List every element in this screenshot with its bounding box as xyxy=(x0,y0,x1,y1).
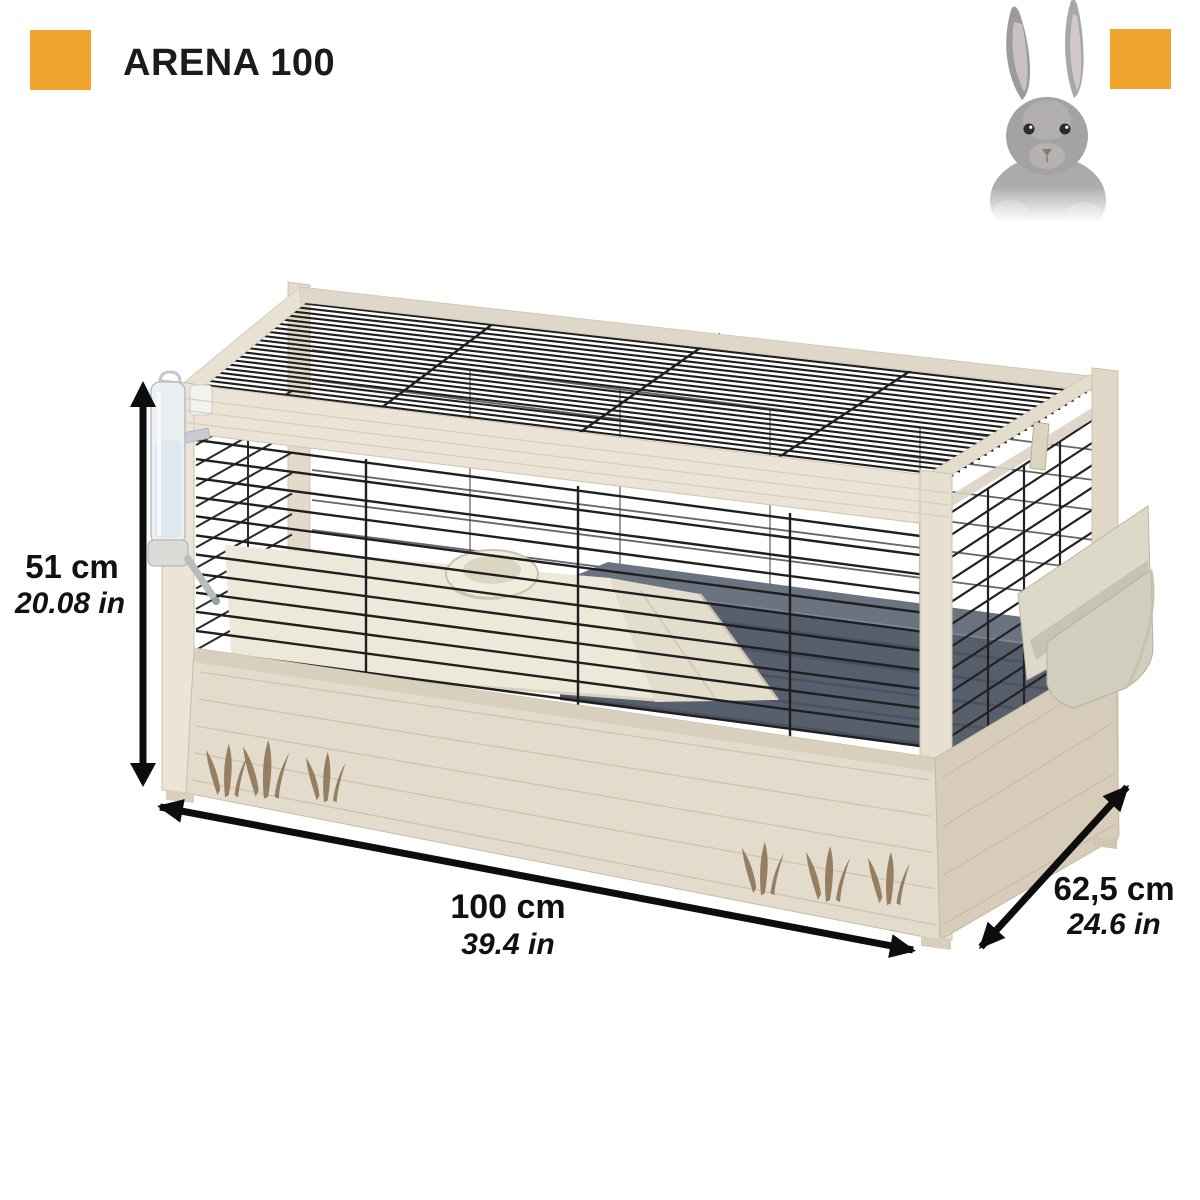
height-label-imperial: 20.08 in xyxy=(2,588,138,620)
width-label-metric: 100 cm xyxy=(398,889,618,926)
depth-label-imperial: 24.6 in xyxy=(1030,909,1198,941)
width-label-imperial: 39.4 in xyxy=(398,929,618,961)
depth-label-metric: 62,5 cm xyxy=(1030,871,1198,907)
height-label-metric: 51 cm xyxy=(14,549,130,585)
cage-illustration xyxy=(0,0,1200,1200)
product-dimension-figure: ARENA 100 xyxy=(0,0,1200,1200)
